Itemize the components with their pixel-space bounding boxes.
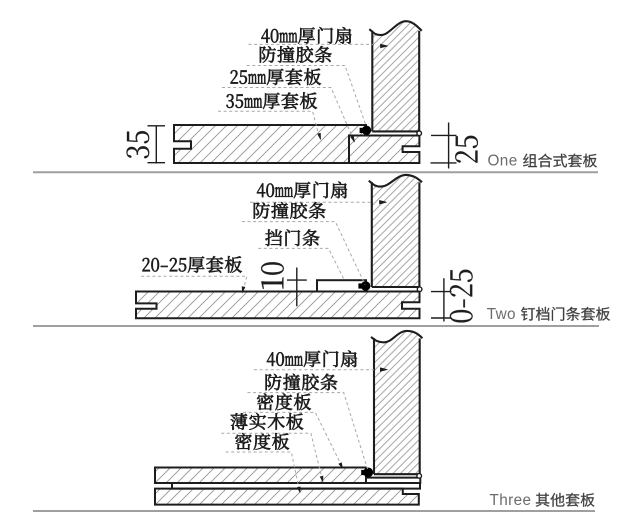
svg-text:Three: Three [490, 492, 532, 509]
svg-text:One: One [488, 153, 518, 170]
svg-text:Two: Two [487, 306, 516, 323]
